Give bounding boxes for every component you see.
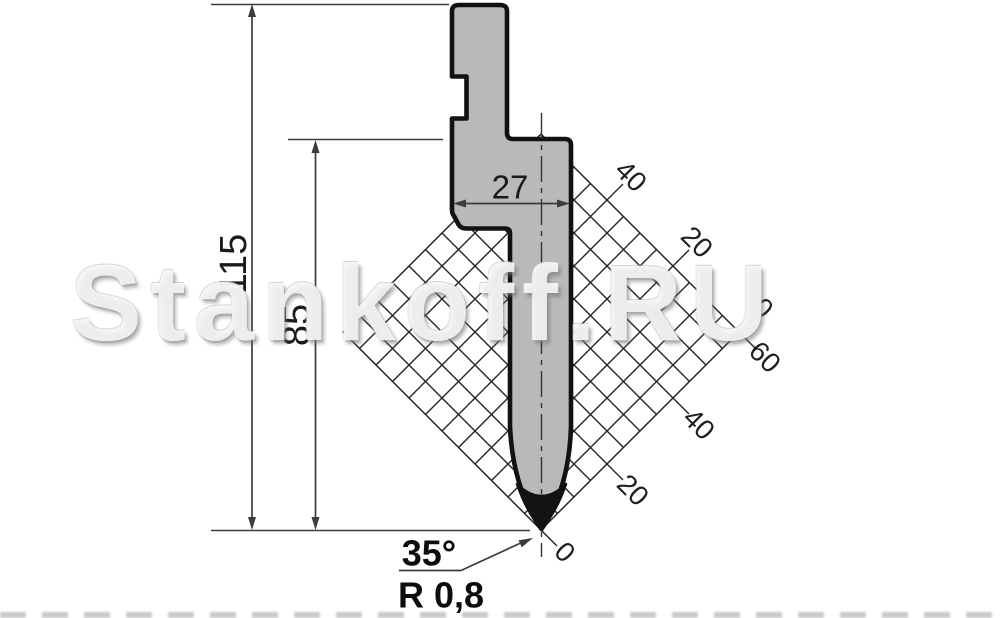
punch-profile — [452, 5, 571, 529]
dimension-total-height: 115 — [213, 4, 256, 530]
dimension-115-label: 115 — [213, 234, 255, 295]
tip-angle-label: 35° — [402, 533, 456, 574]
technical-drawing-canvas: 40 20 0 60 40 20 0 115 8 — [0, 0, 1000, 618]
grid-tick — [673, 398, 689, 414]
tip-radius-label: R 0,8 — [398, 575, 484, 616]
grid-label-lower-60: 60 — [743, 335, 787, 379]
grid-tick — [541, 530, 557, 546]
dimension-shoulder-height: 85 — [276, 140, 320, 530]
dimension-85-label: 85 — [276, 304, 318, 346]
press-brake-punch-drawing: 40 20 0 60 40 20 0 115 8 — [0, 0, 1000, 618]
dimension-27-label: 27 — [492, 169, 529, 206]
grid-label-lower-0: 0 — [549, 536, 582, 569]
grid-tick — [739, 332, 755, 348]
tip-callout: 35° R 0,8 — [398, 533, 533, 616]
grid-tick — [607, 464, 623, 480]
